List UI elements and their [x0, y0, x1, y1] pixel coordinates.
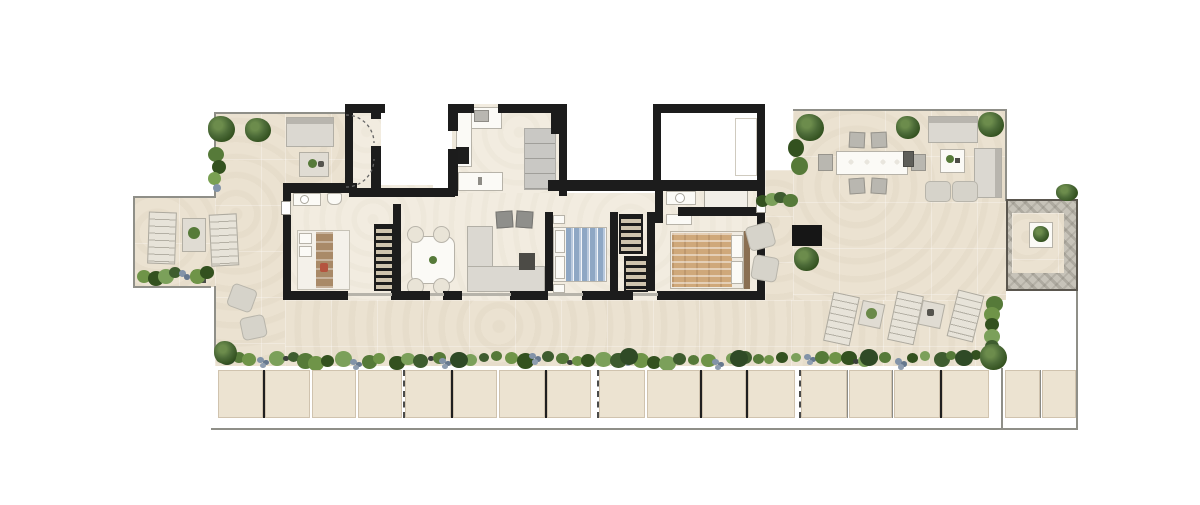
wall-bath-bottom	[678, 207, 757, 216]
parapet-panel	[942, 370, 989, 418]
coffee-table	[519, 253, 535, 270]
corner-bush	[980, 344, 1007, 370]
bed-3-pillow-2	[731, 261, 743, 284]
window-master-bath	[756, 197, 766, 213]
slider-bedroom2	[548, 293, 583, 296]
shrub	[791, 157, 808, 175]
panel-separator	[451, 370, 453, 418]
parapet-panel	[453, 370, 497, 418]
master-basin-icon	[675, 193, 685, 203]
shrub-large	[1056, 184, 1078, 201]
panel-separator	[847, 370, 848, 418]
boundary-right-terrace-right	[1005, 109, 1007, 201]
boundary-front-left	[214, 286, 216, 352]
armchair-2	[515, 210, 533, 228]
nightstand-bed2-b	[553, 284, 565, 293]
bed-1-pillow	[299, 233, 312, 244]
outdoor-chair	[849, 132, 866, 149]
wall-bottom-1	[391, 291, 430, 300]
shrub-large	[794, 247, 819, 271]
boundary-right-lower	[1076, 290, 1078, 429]
wall-bottom-4	[582, 291, 633, 300]
toilet	[327, 193, 342, 205]
parapet-panel	[547, 370, 591, 418]
wall-shaft-left	[653, 108, 661, 184]
wall-bedroom1-right	[393, 204, 401, 291]
wall-bottom-3	[510, 291, 548, 300]
table-decor-icon	[955, 158, 960, 163]
outdoor-sofa-right	[974, 148, 1002, 198]
parapet-panel	[405, 370, 451, 418]
potted-tree	[896, 116, 920, 139]
dining-centerpiece-icon	[429, 256, 437, 264]
ottoman	[925, 181, 951, 202]
panel-separator	[892, 370, 893, 418]
bed-2-pillow	[555, 230, 565, 253]
slider-master	[633, 293, 658, 296]
wardrobe-bedroom1	[374, 224, 394, 291]
boundary-top-left	[215, 112, 345, 114]
door-swing-arcs-icon	[336, 112, 380, 190]
potted-tree	[208, 116, 235, 142]
panel-separator	[940, 370, 942, 418]
parapet-panel	[702, 370, 746, 418]
potted-tree	[245, 118, 271, 142]
closet-unit-1	[619, 214, 643, 254]
closet-unit-2	[624, 256, 648, 292]
bed-1-pillow-2	[299, 246, 312, 257]
wall-bath-stub	[655, 184, 663, 223]
wall-wardrobe-right	[647, 212, 655, 291]
potted-tree	[796, 114, 824, 141]
potted-tree	[978, 112, 1004, 137]
island-faucet-icon	[478, 177, 482, 185]
slider-living-a	[430, 293, 444, 296]
parapet-panel	[1042, 370, 1076, 418]
shaft-duct	[735, 118, 757, 176]
planter-cube	[193, 270, 206, 283]
panel-separator	[746, 370, 748, 418]
outdoor-sofa-top	[928, 116, 978, 143]
panel-separator-dashed	[597, 370, 599, 418]
parapet-panel	[801, 370, 847, 418]
outdoor-chair	[871, 132, 888, 149]
outdoor-sofa-topleft	[286, 117, 334, 147]
outdoor-chair	[818, 154, 833, 171]
bed-1-runner	[316, 232, 333, 288]
ottoman	[952, 181, 978, 202]
shrub-rock	[213, 184, 221, 192]
parapet-panel	[894, 370, 940, 418]
wall-kitchen-left-bottom	[448, 149, 458, 196]
ottoman	[750, 254, 780, 283]
panel-separator-dashed	[403, 370, 405, 418]
parapet-panel	[312, 370, 356, 418]
boundary-right-terrace-top	[793, 109, 1006, 111]
boundary-bottom	[211, 428, 1078, 430]
bed-1-cushion	[320, 263, 328, 272]
floor-plan-canvas	[0, 0, 1200, 505]
boundary-wing-top	[133, 196, 215, 198]
dining-chair-2	[433, 226, 450, 243]
bed-2-pillow-2	[555, 256, 565, 279]
wall-bottom-2	[443, 291, 462, 300]
panel-separator	[1040, 370, 1041, 418]
shrub	[788, 139, 804, 157]
fire-table	[792, 225, 822, 246]
side-table-dark	[903, 151, 914, 167]
boundary-wing-left	[133, 196, 135, 287]
parapet-panel	[218, 370, 263, 418]
parapet-panel	[599, 370, 645, 418]
bed-3-pillow	[731, 235, 743, 258]
side-table-plant-icon	[866, 308, 877, 319]
wall-bottom-5	[657, 291, 765, 300]
wall-bedroom2-left	[545, 212, 553, 291]
side-table-plant-icon	[188, 227, 200, 239]
wall-bedroom2-right	[610, 212, 618, 291]
window-bedroom1	[281, 201, 291, 215]
outdoor-chair	[848, 177, 865, 194]
outdoor-chair	[870, 177, 887, 194]
boundary-hedge-right	[1001, 368, 1003, 429]
floor-stair-core	[381, 104, 448, 196]
corner-bush	[214, 341, 237, 364]
shrub	[208, 172, 221, 185]
slider-dining	[348, 293, 392, 296]
parapet-panel	[265, 370, 310, 418]
basin-icon	[300, 195, 309, 204]
bed-3-duvet-tan	[672, 233, 732, 287]
nightstand-bed2-a	[553, 215, 565, 224]
wall-core-bottom	[371, 188, 455, 197]
parapet-panel	[748, 370, 795, 418]
parapet-panel	[358, 370, 402, 418]
wall-shaft-right	[757, 104, 765, 184]
planter-plant	[1033, 226, 1049, 242]
side-table-decor-icon	[927, 309, 934, 316]
parapet-panel	[1005, 370, 1040, 418]
dining-chair-1	[407, 226, 424, 243]
sun-lounger	[209, 213, 240, 266]
slider-living-b	[462, 293, 511, 296]
panel-separator	[545, 370, 547, 418]
wall-wing-bottom	[283, 291, 348, 300]
panel-separator	[700, 370, 702, 418]
wall-shaft-top	[653, 104, 765, 113]
table-plant-icon	[946, 155, 954, 163]
table-decor-icon	[318, 161, 324, 167]
dining-plates-icon	[843, 156, 901, 169]
parapet-panel	[647, 370, 700, 418]
wall-kitchen-top-a	[448, 104, 474, 113]
parapet-panel	[849, 370, 892, 418]
boundary-wing-bottom	[133, 286, 211, 288]
armchair-1	[495, 210, 513, 228]
oven-icon	[474, 110, 489, 122]
panel-separator	[263, 370, 265, 418]
sun-lounger	[147, 212, 177, 265]
panel-separator-dashed	[799, 370, 801, 418]
bed-2-duvet-blue	[566, 228, 606, 281]
parapet-panel	[499, 370, 545, 418]
table-plant-icon	[308, 159, 317, 168]
